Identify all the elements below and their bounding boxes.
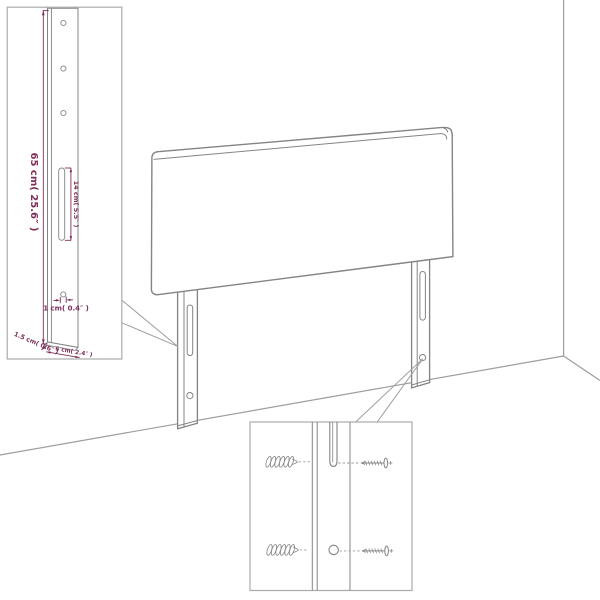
left-leg-hole [187,393,193,399]
leg-top-hole-3 [61,110,66,115]
right-callout-frame [250,422,412,591]
leg-hole-closeup [329,545,338,554]
slot-dimension-label: 14 cm( 5.5″ ) [72,181,80,228]
floor-line-right [564,356,600,381]
left-leg-slot [187,305,193,356]
leg-top-hole-1 [61,20,66,25]
right-leg-slot [420,272,426,321]
leg-slot-side-view [59,168,65,240]
headboard-right-leg [412,259,430,388]
left-callout-leaders [122,300,178,346]
right-detail-callout [250,422,412,591]
headboard-left-leg [178,290,198,429]
left-detail-callout: 65 cm( 25.6″ ) 14 cm( 5.5″ ) 1 cm( 0.4″ … [7,7,122,359]
leg-top-hole-2 [61,66,66,71]
height-dimension-label: 65 cm( 25.6″ ) [28,153,39,232]
leg-lower-hole-side-view [61,292,66,297]
leg-side-view [45,8,78,350]
headboard-panel [151,127,453,294]
assembly-diagram: 65 cm( 25.6″ ) 14 cm( 5.5″ ) 1 cm( 0.4″ … [0,0,600,600]
diagram-canvas: 65 cm( 25.6″ ) 14 cm( 5.5″ ) 1 cm( 0.4″ … [0,0,600,600]
hole-dimension-label: 1 cm( 0.4″ ) [43,305,89,313]
